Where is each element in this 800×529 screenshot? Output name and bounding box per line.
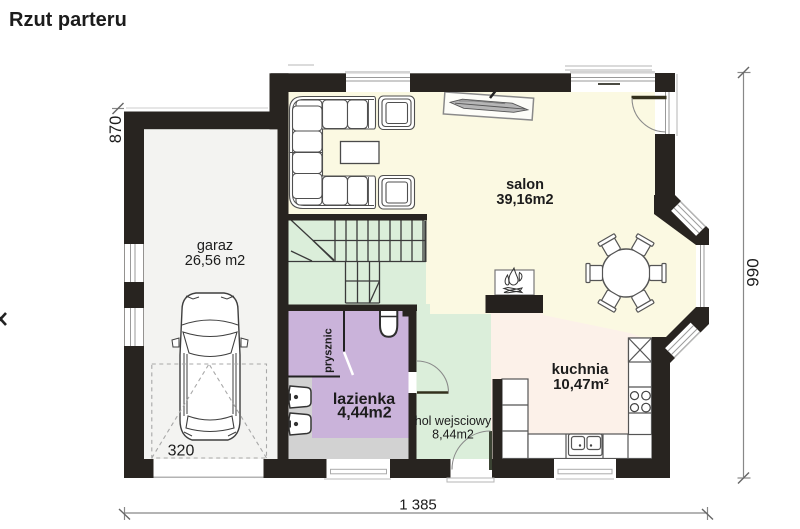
- svg-text:39,16m2: 39,16m2: [496, 192, 553, 208]
- svg-text:8,44m2: 8,44m2: [432, 428, 474, 442]
- svg-text:10,47m²: 10,47m²: [553, 376, 609, 393]
- svg-text:salon: salon: [506, 177, 544, 193]
- svg-text:990: 990: [744, 258, 763, 286]
- svg-text:hol wejsciowy: hol wejsciowy: [415, 414, 492, 428]
- svg-text:1 385: 1 385: [399, 497, 437, 514]
- svg-text:320: 320: [168, 443, 195, 460]
- svg-text:garaz: garaz: [197, 238, 233, 254]
- svg-text:870: 870: [107, 116, 125, 144]
- svg-text:Rzut parteru: Rzut parteru: [9, 9, 127, 31]
- svg-text:prysznic: prysznic: [323, 328, 335, 373]
- svg-text:26,56 m2: 26,56 m2: [185, 253, 245, 269]
- svg-text:4,44m2: 4,44m2: [337, 405, 391, 422]
